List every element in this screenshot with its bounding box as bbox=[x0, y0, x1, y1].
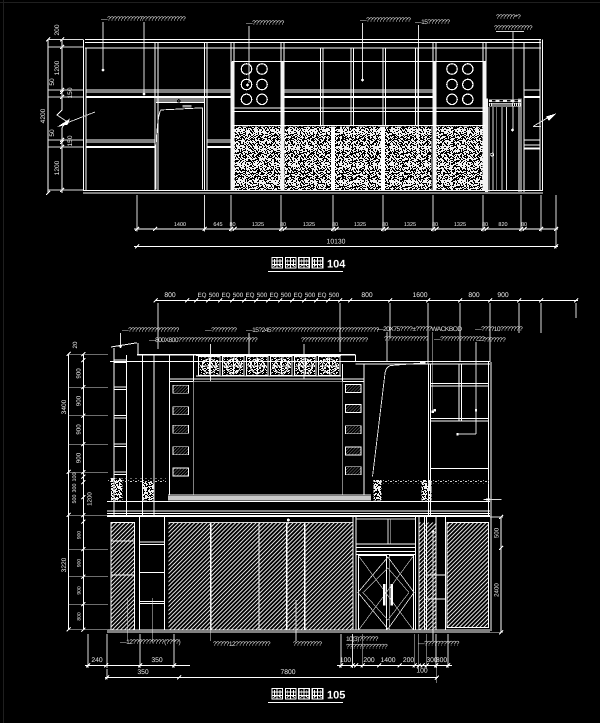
svg-text:EQ: EQ bbox=[294, 292, 303, 299]
svg-text:—??????????: —?????????? bbox=[246, 20, 285, 27]
svg-text:—20X75????±?????WACKBOD: —20X75????±?????WACKBOD bbox=[377, 326, 462, 333]
svg-text:50: 50 bbox=[49, 129, 56, 137]
svg-text:EQ: EQ bbox=[222, 292, 231, 299]
svg-text:EQ: EQ bbox=[270, 292, 279, 299]
svg-text:900: 900 bbox=[76, 424, 83, 435]
svg-text:80: 80 bbox=[432, 222, 438, 228]
svg-text:1200: 1200 bbox=[87, 492, 94, 506]
svg-text:—??????????????: —?????????????? bbox=[360, 17, 411, 24]
svg-text:??????????????: ?????????????? bbox=[384, 336, 429, 343]
svg-text:3400: 3400 bbox=[61, 399, 68, 414]
svg-text:150: 150 bbox=[67, 135, 74, 146]
svg-text:105: 105 bbox=[327, 690, 345, 702]
svg-text:200: 200 bbox=[54, 24, 61, 35]
svg-text:900: 900 bbox=[77, 531, 83, 540]
svg-text:?????12???????????: ?????12??????????? bbox=[213, 641, 271, 648]
svg-text:100: 100 bbox=[416, 668, 428, 675]
svg-text:7800: 7800 bbox=[280, 669, 295, 676]
svg-text:2400: 2400 bbox=[494, 583, 501, 597]
svg-text:—????????: —???????? bbox=[205, 327, 237, 334]
svg-text:80: 80 bbox=[332, 222, 338, 228]
svg-text:EQ: EQ bbox=[318, 292, 327, 299]
svg-text:645: 645 bbox=[213, 222, 222, 228]
svg-text:80: 80 bbox=[280, 222, 286, 228]
svg-text:????????????: ???????????? bbox=[494, 25, 533, 32]
svg-text:—???????????: —??????????? bbox=[101, 16, 143, 23]
svg-text:500: 500 bbox=[329, 292, 340, 299]
svg-text:1325: 1325 bbox=[303, 222, 315, 228]
svg-text:—???????????: —??????????? bbox=[418, 641, 460, 648]
svg-text:500: 500 bbox=[494, 527, 501, 538]
svg-text:4200: 4200 bbox=[40, 108, 47, 123]
svg-text:900: 900 bbox=[76, 395, 83, 406]
svg-text:—????????????????: —???????????????? bbox=[122, 327, 180, 334]
svg-text:1325: 1325 bbox=[354, 222, 366, 228]
svg-text:EQ: EQ bbox=[246, 292, 255, 299]
svg-text:350: 350 bbox=[137, 669, 149, 676]
svg-text:??????*?: ??????*? bbox=[496, 14, 521, 21]
svg-text:300: 300 bbox=[436, 657, 448, 664]
svg-text:500: 500 bbox=[281, 292, 292, 299]
svg-text:3220: 3220 bbox=[61, 557, 68, 572]
svg-text:80: 80 bbox=[482, 222, 488, 228]
svg-text:800: 800 bbox=[77, 612, 83, 621]
svg-text:800: 800 bbox=[468, 292, 480, 299]
svg-text:240: 240 bbox=[91, 657, 103, 664]
svg-text:50: 50 bbox=[49, 78, 56, 86]
svg-text:—???????: —??????? bbox=[477, 337, 506, 344]
svg-text:1325: 1325 bbox=[454, 222, 466, 228]
svg-text:EQ: EQ bbox=[198, 292, 207, 299]
svg-text:820: 820 bbox=[498, 222, 507, 228]
svg-text:500: 500 bbox=[257, 292, 268, 299]
svg-text:1600: 1600 bbox=[412, 292, 427, 299]
svg-text:—12??????????(????): —12??????????(????) bbox=[120, 639, 180, 646]
svg-text:10(3)??????: 10(3)?????? bbox=[346, 636, 379, 643]
svg-text:1325: 1325 bbox=[404, 222, 416, 228]
svg-text:—15?245???????????????????????: —15?245?????????????????????????????????… bbox=[246, 327, 380, 334]
svg-text:900: 900 bbox=[76, 368, 83, 379]
svg-text:1400: 1400 bbox=[174, 222, 186, 228]
svg-text:500: 500 bbox=[209, 292, 220, 299]
svg-text:?????????: ????????? bbox=[293, 641, 322, 648]
svg-text:80: 80 bbox=[521, 222, 527, 228]
svg-text:104: 104 bbox=[327, 259, 346, 271]
svg-text:300: 300 bbox=[72, 484, 78, 493]
svg-text:200: 200 bbox=[363, 657, 375, 664]
svg-text:1325: 1325 bbox=[252, 222, 264, 228]
svg-text:1400: 1400 bbox=[380, 657, 395, 664]
svg-text:—????10???????: —????10??????? bbox=[475, 326, 523, 333]
svg-text:20: 20 bbox=[72, 341, 79, 348]
svg-text:1200: 1200 bbox=[54, 160, 61, 175]
svg-text:900: 900 bbox=[77, 586, 83, 595]
svg-text:10130: 10130 bbox=[327, 239, 346, 246]
svg-text:500: 500 bbox=[72, 495, 78, 504]
svg-text:350: 350 bbox=[151, 657, 163, 664]
svg-text:—800X800??????????????????????: —800X800????????????????????????? bbox=[149, 337, 258, 344]
svg-text:500: 500 bbox=[233, 292, 244, 299]
svg-text:??????????????: ?????????????? bbox=[141, 16, 186, 23]
svg-text:100: 100 bbox=[340, 657, 352, 664]
svg-text:800: 800 bbox=[361, 292, 373, 299]
svg-text:80: 80 bbox=[229, 222, 235, 228]
svg-text:?????????????????????: ????????????????????? bbox=[301, 337, 368, 344]
svg-text:900: 900 bbox=[76, 452, 83, 463]
svg-text:—15???????: —15??????? bbox=[415, 19, 450, 26]
svg-text:500: 500 bbox=[305, 292, 316, 299]
svg-text:900: 900 bbox=[497, 292, 509, 299]
svg-text:900: 900 bbox=[77, 559, 83, 568]
svg-text:200: 200 bbox=[403, 657, 415, 664]
svg-text:800: 800 bbox=[164, 292, 176, 299]
svg-text:1200: 1200 bbox=[54, 60, 61, 75]
svg-text:80: 80 bbox=[382, 222, 388, 228]
svg-text:100: 100 bbox=[72, 473, 78, 482]
